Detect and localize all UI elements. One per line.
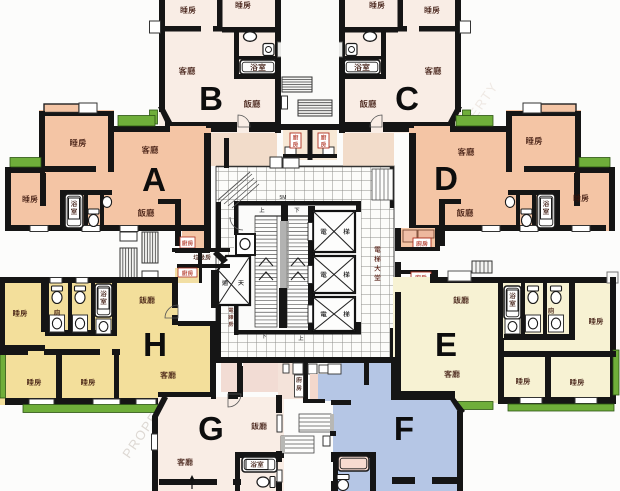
svg-text:C: C xyxy=(395,80,419,117)
svg-text:B: B xyxy=(199,80,223,117)
svg-text:D: D xyxy=(434,160,458,197)
svg-text:E: E xyxy=(435,326,457,363)
svg-text:A: A xyxy=(142,161,166,198)
svg-text:H: H xyxy=(143,326,167,363)
svg-text:G: G xyxy=(198,410,224,447)
svg-text:5M: 5M xyxy=(280,195,287,201)
svg-text:F: F xyxy=(394,410,414,447)
